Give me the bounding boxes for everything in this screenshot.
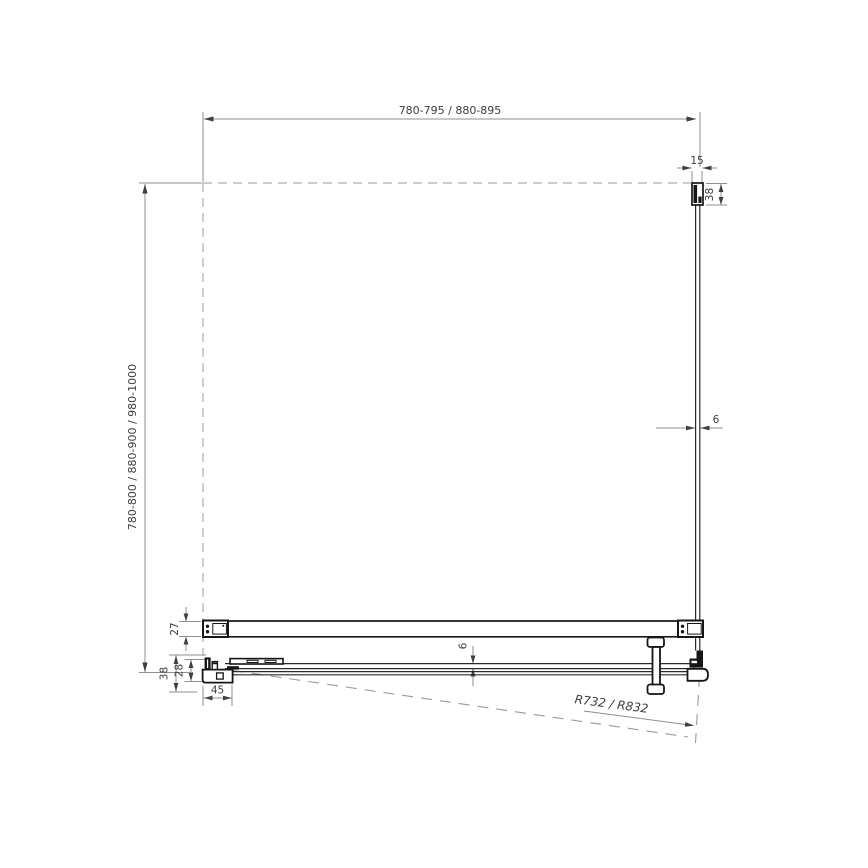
- extension-lines: [139, 112, 727, 706]
- door-glass-section: [217, 664, 694, 675]
- dimension-profile-depth-38: [719, 184, 724, 205]
- dimension-bar-27: [184, 607, 189, 651]
- wall-profile-section: [692, 183, 703, 205]
- label-profile-width: 15: [690, 155, 703, 167]
- support-bar-glass-bracket: [678, 621, 703, 638]
- label-door-glass-thickness: 6: [458, 642, 470, 649]
- dimension-width-top: [204, 116, 696, 121]
- label-depth-left: 780-800 / 880-900 / 980-1000: [126, 364, 139, 530]
- pivot-extension-line: [696, 676, 700, 743]
- dimension-glass-6-right: [656, 426, 723, 431]
- label-width-top: 780-795 / 880-895: [399, 104, 502, 117]
- dimension-depth-left: [142, 184, 147, 672]
- label-sill-inner-height: 28: [174, 664, 186, 677]
- bottom-guide-plate: [227, 659, 283, 670]
- dimension-sill-28: [189, 660, 194, 682]
- label-bar-depth: 27: [169, 622, 181, 635]
- label-glass-thickness: 6: [713, 414, 720, 426]
- support-bar-wall-bracket: [203, 621, 228, 638]
- label-profile-depth: 38: [704, 188, 716, 201]
- label-swing-radius: R732 / R832: [574, 692, 649, 716]
- technical-drawing: 780-795 / 880-895 780-800 / 880-900 / 98…: [0, 0, 868, 868]
- label-sill-height: 38: [159, 667, 171, 680]
- shower-enclosure-plan-drawing: 780-795 / 880-895 780-800 / 880-900 / 98…: [0, 0, 868, 868]
- fixed-glass-panel: [696, 205, 700, 651]
- support-bar: [203, 621, 703, 638]
- label-sill-depth: 45: [211, 685, 224, 697]
- dimension-door-glass-6: [471, 646, 476, 686]
- bottom-corner-right: [688, 651, 709, 681]
- bottom-sill-left: [203, 657, 233, 682]
- door-handle: [648, 638, 665, 695]
